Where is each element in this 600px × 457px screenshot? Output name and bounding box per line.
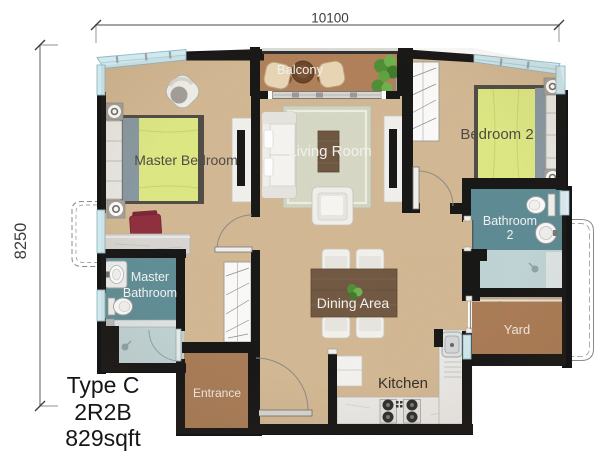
svg-text:Kitchen: Kitchen (378, 375, 428, 392)
svg-text:Bathroom: Bathroom (123, 286, 177, 300)
svg-text:Master Bedroom: Master Bedroom (134, 152, 237, 168)
svg-text:Balcony: Balcony (277, 62, 324, 77)
svg-text:Bathroom: Bathroom (483, 214, 537, 228)
svg-text:Yard: Yard (504, 322, 531, 337)
svg-text:2R2B: 2R2B (74, 399, 132, 425)
svg-text:Type C: Type C (67, 372, 140, 398)
svg-text:10100: 10100 (311, 11, 349, 26)
svg-text:Bedroom 2: Bedroom 2 (460, 126, 533, 143)
svg-text:Dining Area: Dining Area (317, 295, 390, 311)
svg-text:Living Room: Living Room (288, 143, 371, 160)
svg-text:829sqft: 829sqft (65, 425, 141, 451)
svg-text:Entrance: Entrance (193, 386, 241, 400)
svg-text:8250: 8250 (12, 223, 30, 260)
svg-text:2: 2 (507, 228, 514, 242)
svg-text:Master: Master (131, 270, 169, 284)
